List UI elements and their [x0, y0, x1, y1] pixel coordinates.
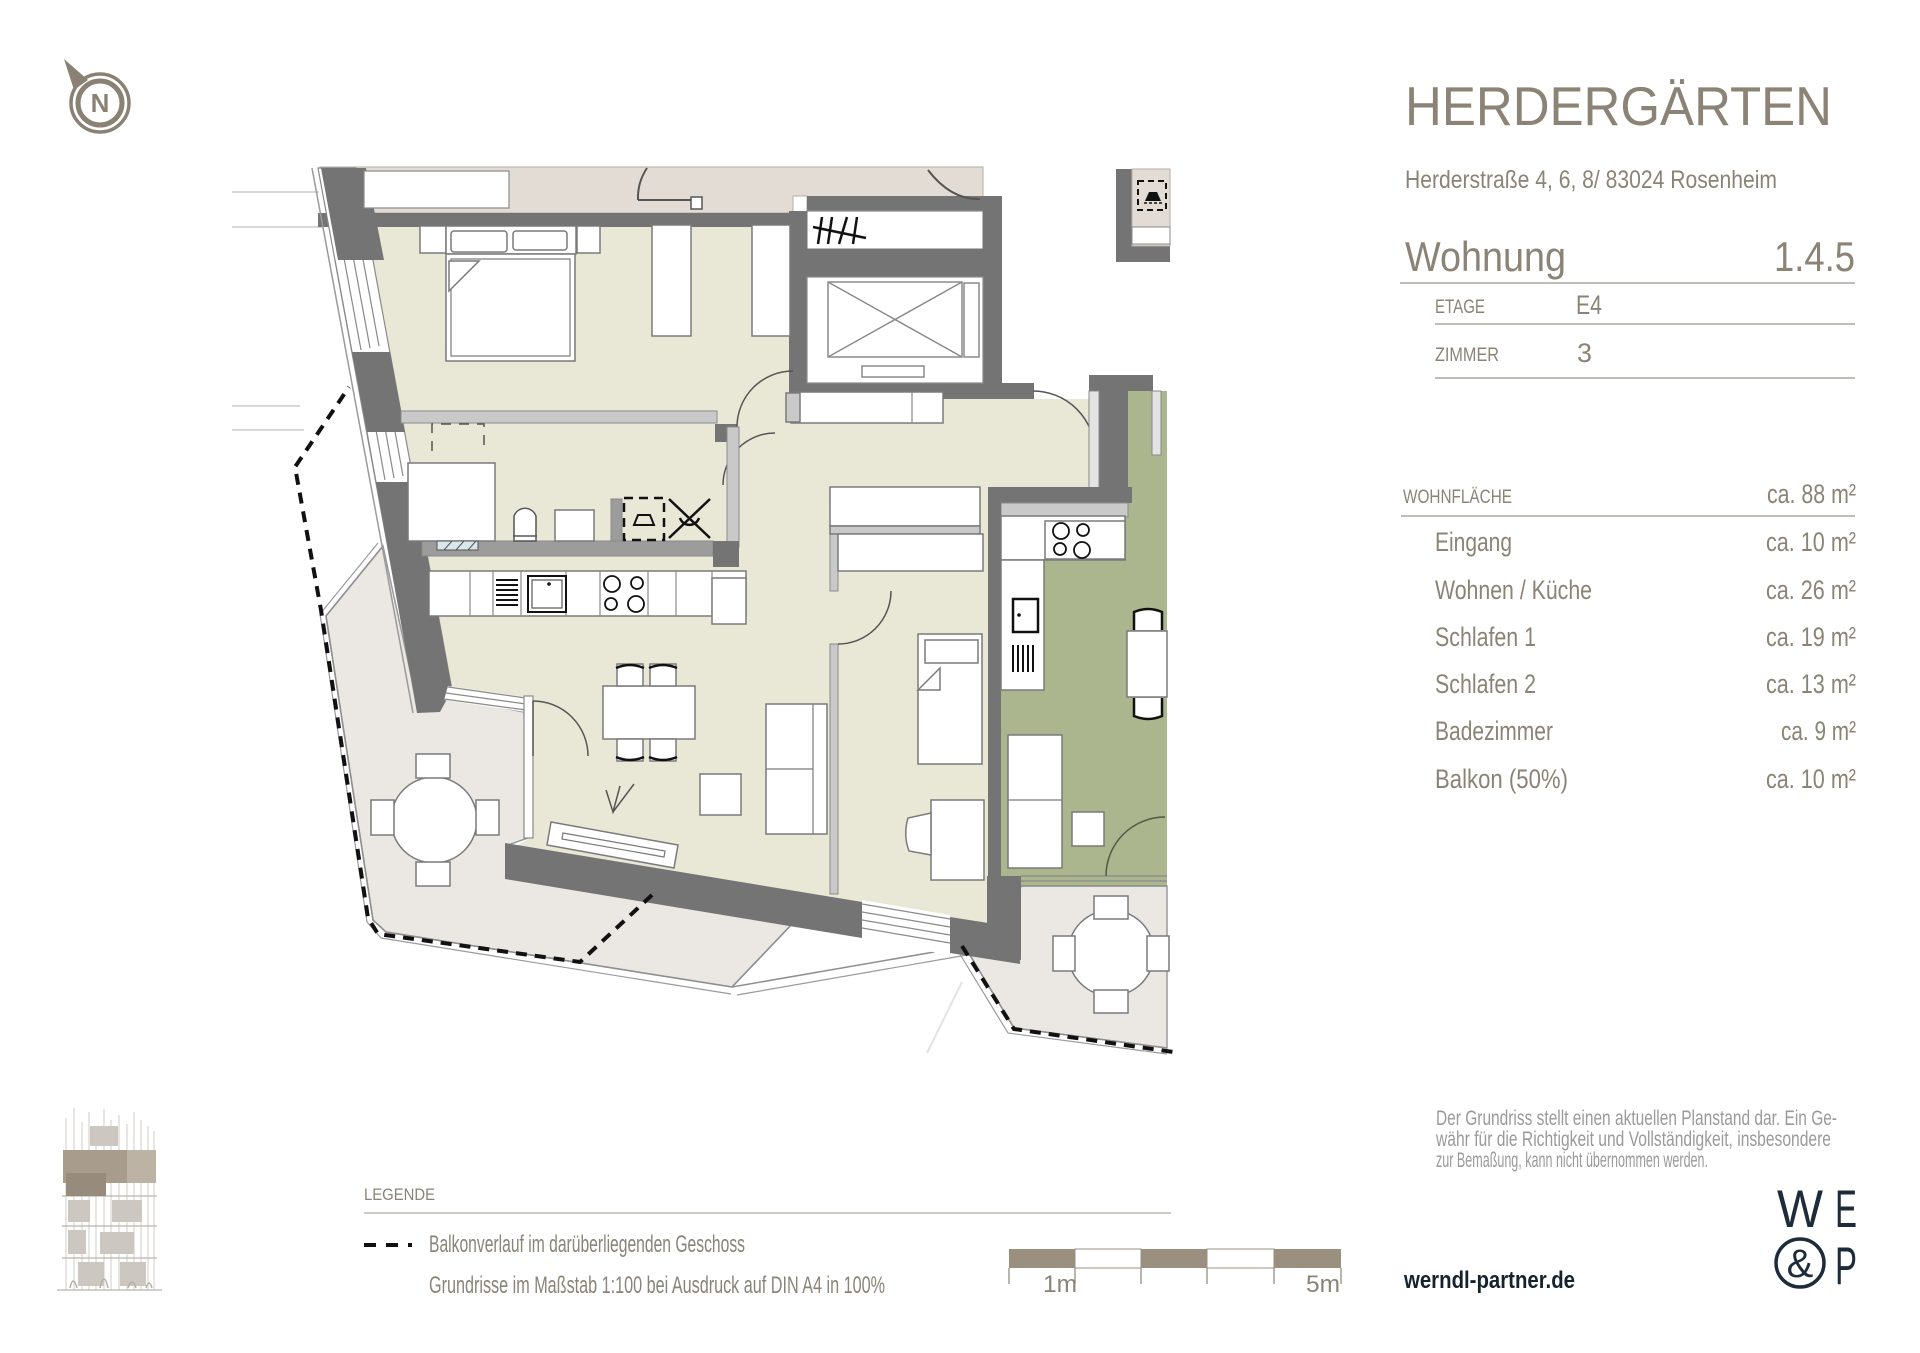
svg-text:Grundrisse im Maßstab 1:100 be: Grundrisse im Maßstab 1:100 bei Ausdruck… [429, 1272, 885, 1299]
svg-text:ETAGE: ETAGE [1435, 297, 1485, 318]
svg-text:HERDERGÄRTEN: HERDERGÄRTEN [1405, 75, 1832, 137]
svg-text:Der Grundriss stellt einen akt: Der Grundriss stellt einen aktuellen Pla… [1436, 1107, 1837, 1130]
svg-text:E4: E4 [1576, 290, 1602, 320]
svg-text:zur Bemaßung, kann nicht übern: zur Bemaßung, kann nicht übernommen werd… [1436, 1149, 1708, 1172]
svg-text:3: 3 [1577, 338, 1592, 368]
svg-text:ca. 88 m²: ca. 88 m² [1767, 479, 1856, 509]
svg-text:1.4.5: 1.4.5 [1774, 233, 1855, 280]
svg-text:1m: 1m [1043, 1271, 1077, 1298]
svg-text:Balkonverlauf im darüberliegen: Balkonverlauf im darüberliegenden Gescho… [429, 1231, 745, 1258]
svg-text:ca. 13 m²: ca. 13 m² [1766, 669, 1856, 699]
svg-text:ca. 10 m²: ca. 10 m² [1766, 527, 1856, 557]
svg-text:Eingang: Eingang [1435, 527, 1512, 557]
svg-text:währ für die Richtigkeit und V: währ für die Richtigkeit und Vollständig… [1435, 1128, 1831, 1151]
svg-text:N: N [91, 88, 110, 118]
svg-text:ca. 19 m²: ca. 19 m² [1766, 622, 1856, 652]
svg-text:Schlafen 2: Schlafen 2 [1435, 669, 1536, 699]
svg-text:werndl-partner.de: werndl-partner.de [1403, 1267, 1575, 1294]
svg-text:Wohnung: Wohnung [1405, 233, 1566, 280]
svg-text:E: E [1835, 1180, 1857, 1239]
svg-text:WOHNFLÄCHE: WOHNFLÄCHE [1403, 487, 1512, 508]
svg-text:Herderstraße 4, 6, 8/ 83024 Ro: Herderstraße 4, 6, 8/ 83024 Rosenheim [1405, 166, 1777, 194]
svg-text:ca. 9 m²: ca. 9 m² [1781, 716, 1856, 746]
svg-text:Badezimmer: Badezimmer [1435, 716, 1553, 746]
svg-text:ca. 10 m²: ca. 10 m² [1766, 764, 1856, 794]
svg-text:ca. 26 m²: ca. 26 m² [1766, 575, 1856, 605]
svg-text:5m: 5m [1306, 1271, 1340, 1298]
svg-text:LEGENDE: LEGENDE [364, 1185, 435, 1204]
svg-text:ZIMMER: ZIMMER [1435, 345, 1499, 366]
svg-text:&: & [1787, 1242, 1814, 1286]
svg-text:Wohnen / Küche: Wohnen / Küche [1435, 575, 1592, 605]
svg-text:W: W [1777, 1180, 1823, 1239]
svg-text:P: P [1835, 1237, 1857, 1296]
svg-text:Schlafen 1: Schlafen 1 [1435, 622, 1536, 652]
svg-text:Balkon (50%): Balkon (50%) [1435, 764, 1568, 794]
